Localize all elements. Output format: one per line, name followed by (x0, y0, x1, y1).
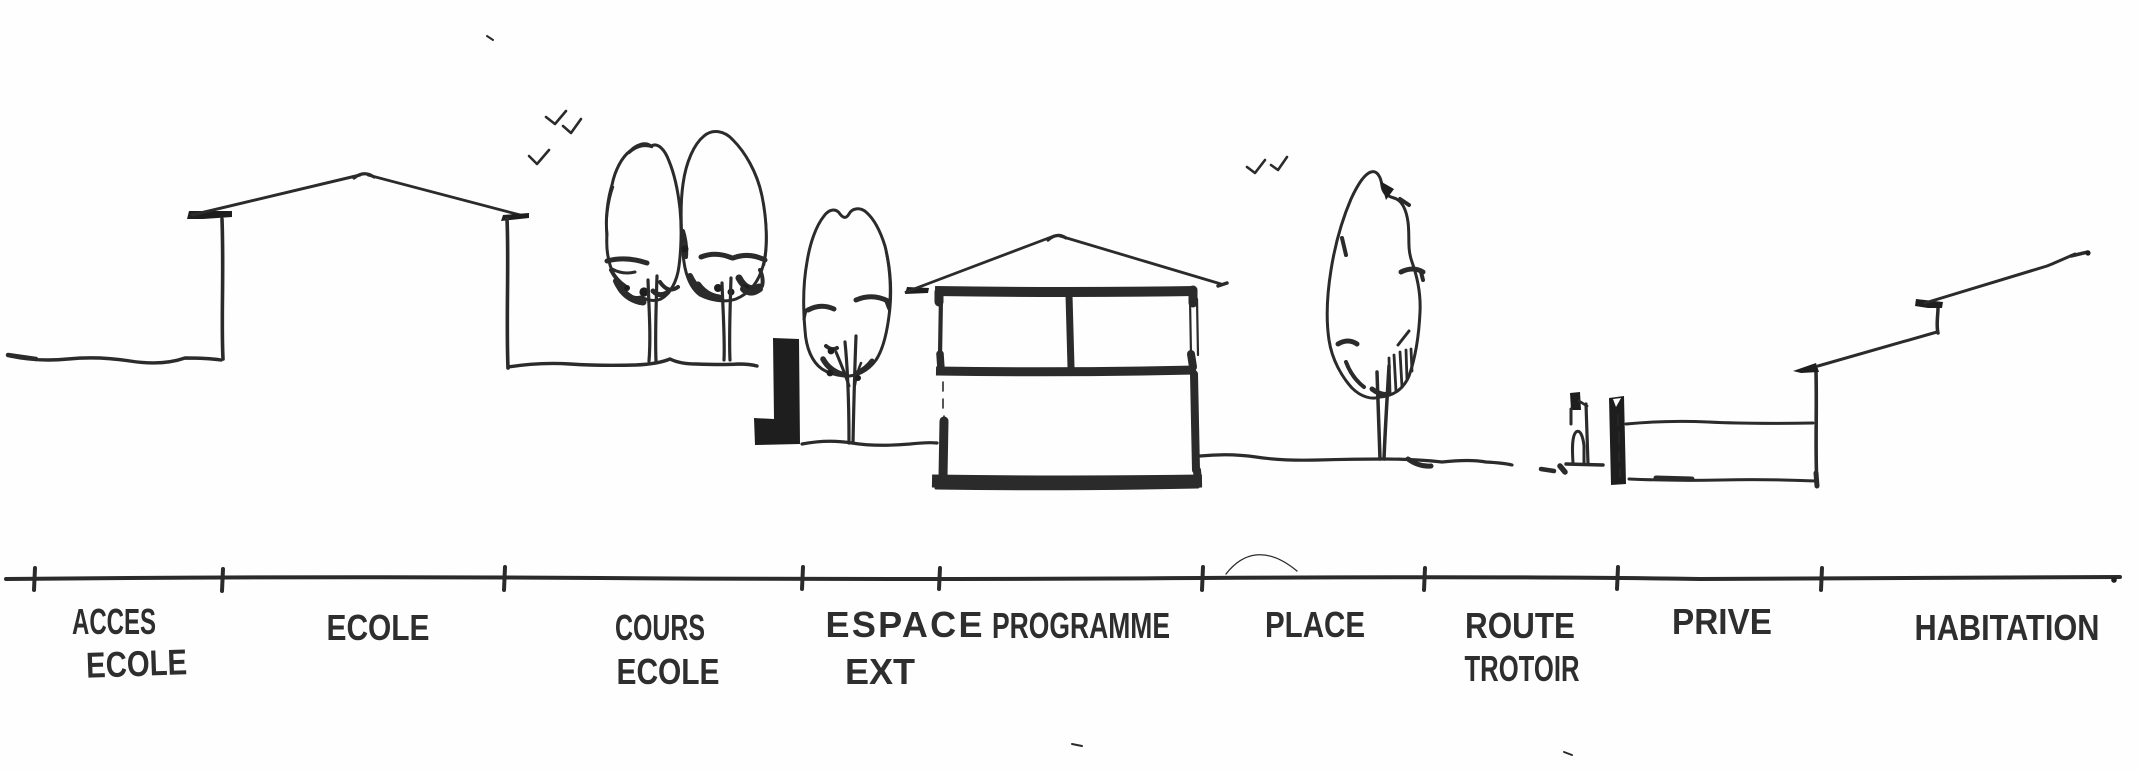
svg-text:PLACE: PLACE (1265, 604, 1365, 645)
svg-text:HABITATION: HABITATION (1915, 607, 2100, 648)
svg-text:EXT: EXT (845, 651, 915, 692)
svg-text:PROGRAMME: PROGRAMME (992, 605, 1170, 646)
svg-text:PRIVE: PRIVE (1672, 601, 1772, 642)
svg-text:ECOLE: ECOLE (85, 641, 187, 685)
svg-text:COURS: COURS (615, 607, 705, 648)
svg-text:TROTOIR: TROTOIR (1465, 648, 1580, 689)
svg-text:ECOLE: ECOLE (327, 607, 430, 648)
svg-text:ESPACE: ESPACE (826, 604, 983, 645)
svg-text:ROUTE: ROUTE (1465, 605, 1575, 646)
svg-text:ECOLE: ECOLE (617, 651, 720, 692)
svg-text:ACCES: ACCES (72, 601, 156, 642)
